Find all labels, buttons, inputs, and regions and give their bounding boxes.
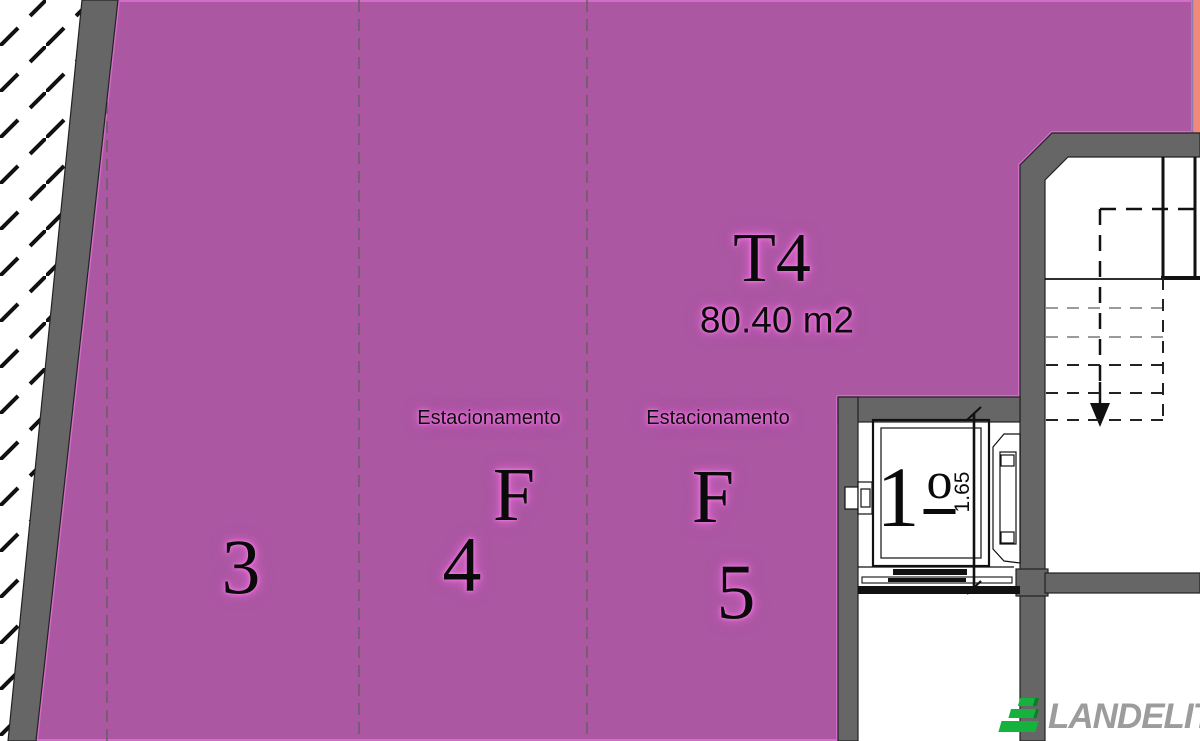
parking-letter-2: F	[692, 459, 734, 535]
floor-plan-canvas: T4 80.40 m2 Estacionamento Estacionament…	[0, 0, 1200, 741]
elevator-counterweight	[993, 434, 1020, 563]
parking-letter-1: F	[493, 457, 535, 533]
brand-name: LANDELITY	[1048, 699, 1200, 734]
floor-plan-drawing	[0, 0, 1200, 741]
stall-number-3: 3	[222, 528, 261, 606]
elevator-top-wall	[838, 397, 1020, 422]
dimension-label: 1.65	[951, 472, 975, 513]
elevator-left-wall	[838, 397, 858, 741]
adjacent-unit-strip	[1193, 0, 1200, 133]
unit-area-label: 80.40 m2	[700, 302, 854, 339]
parking-label-1: Estacionamento	[417, 408, 560, 428]
stairwell-wall	[1020, 133, 1200, 741]
wall-junction-block	[1016, 569, 1048, 596]
floor-number: 1	[877, 454, 920, 540]
stairwell	[1045, 157, 1200, 427]
stall-number-4: 4	[443, 526, 482, 604]
brand-watermark: LANDELITY	[997, 695, 1200, 737]
elevator-door-hardware-left	[845, 482, 872, 514]
bottom-right-wall	[1045, 573, 1200, 593]
elevator-door-sill	[858, 567, 1020, 594]
parking-label-2: Estacionamento	[646, 408, 789, 428]
stall-number-5: 5	[717, 553, 756, 631]
stair-treads	[1046, 278, 1163, 420]
elevator-floor-label: 1 o	[877, 454, 956, 540]
unit-type-label: T4	[733, 224, 811, 294]
landelity-logo-icon	[997, 695, 1043, 737]
